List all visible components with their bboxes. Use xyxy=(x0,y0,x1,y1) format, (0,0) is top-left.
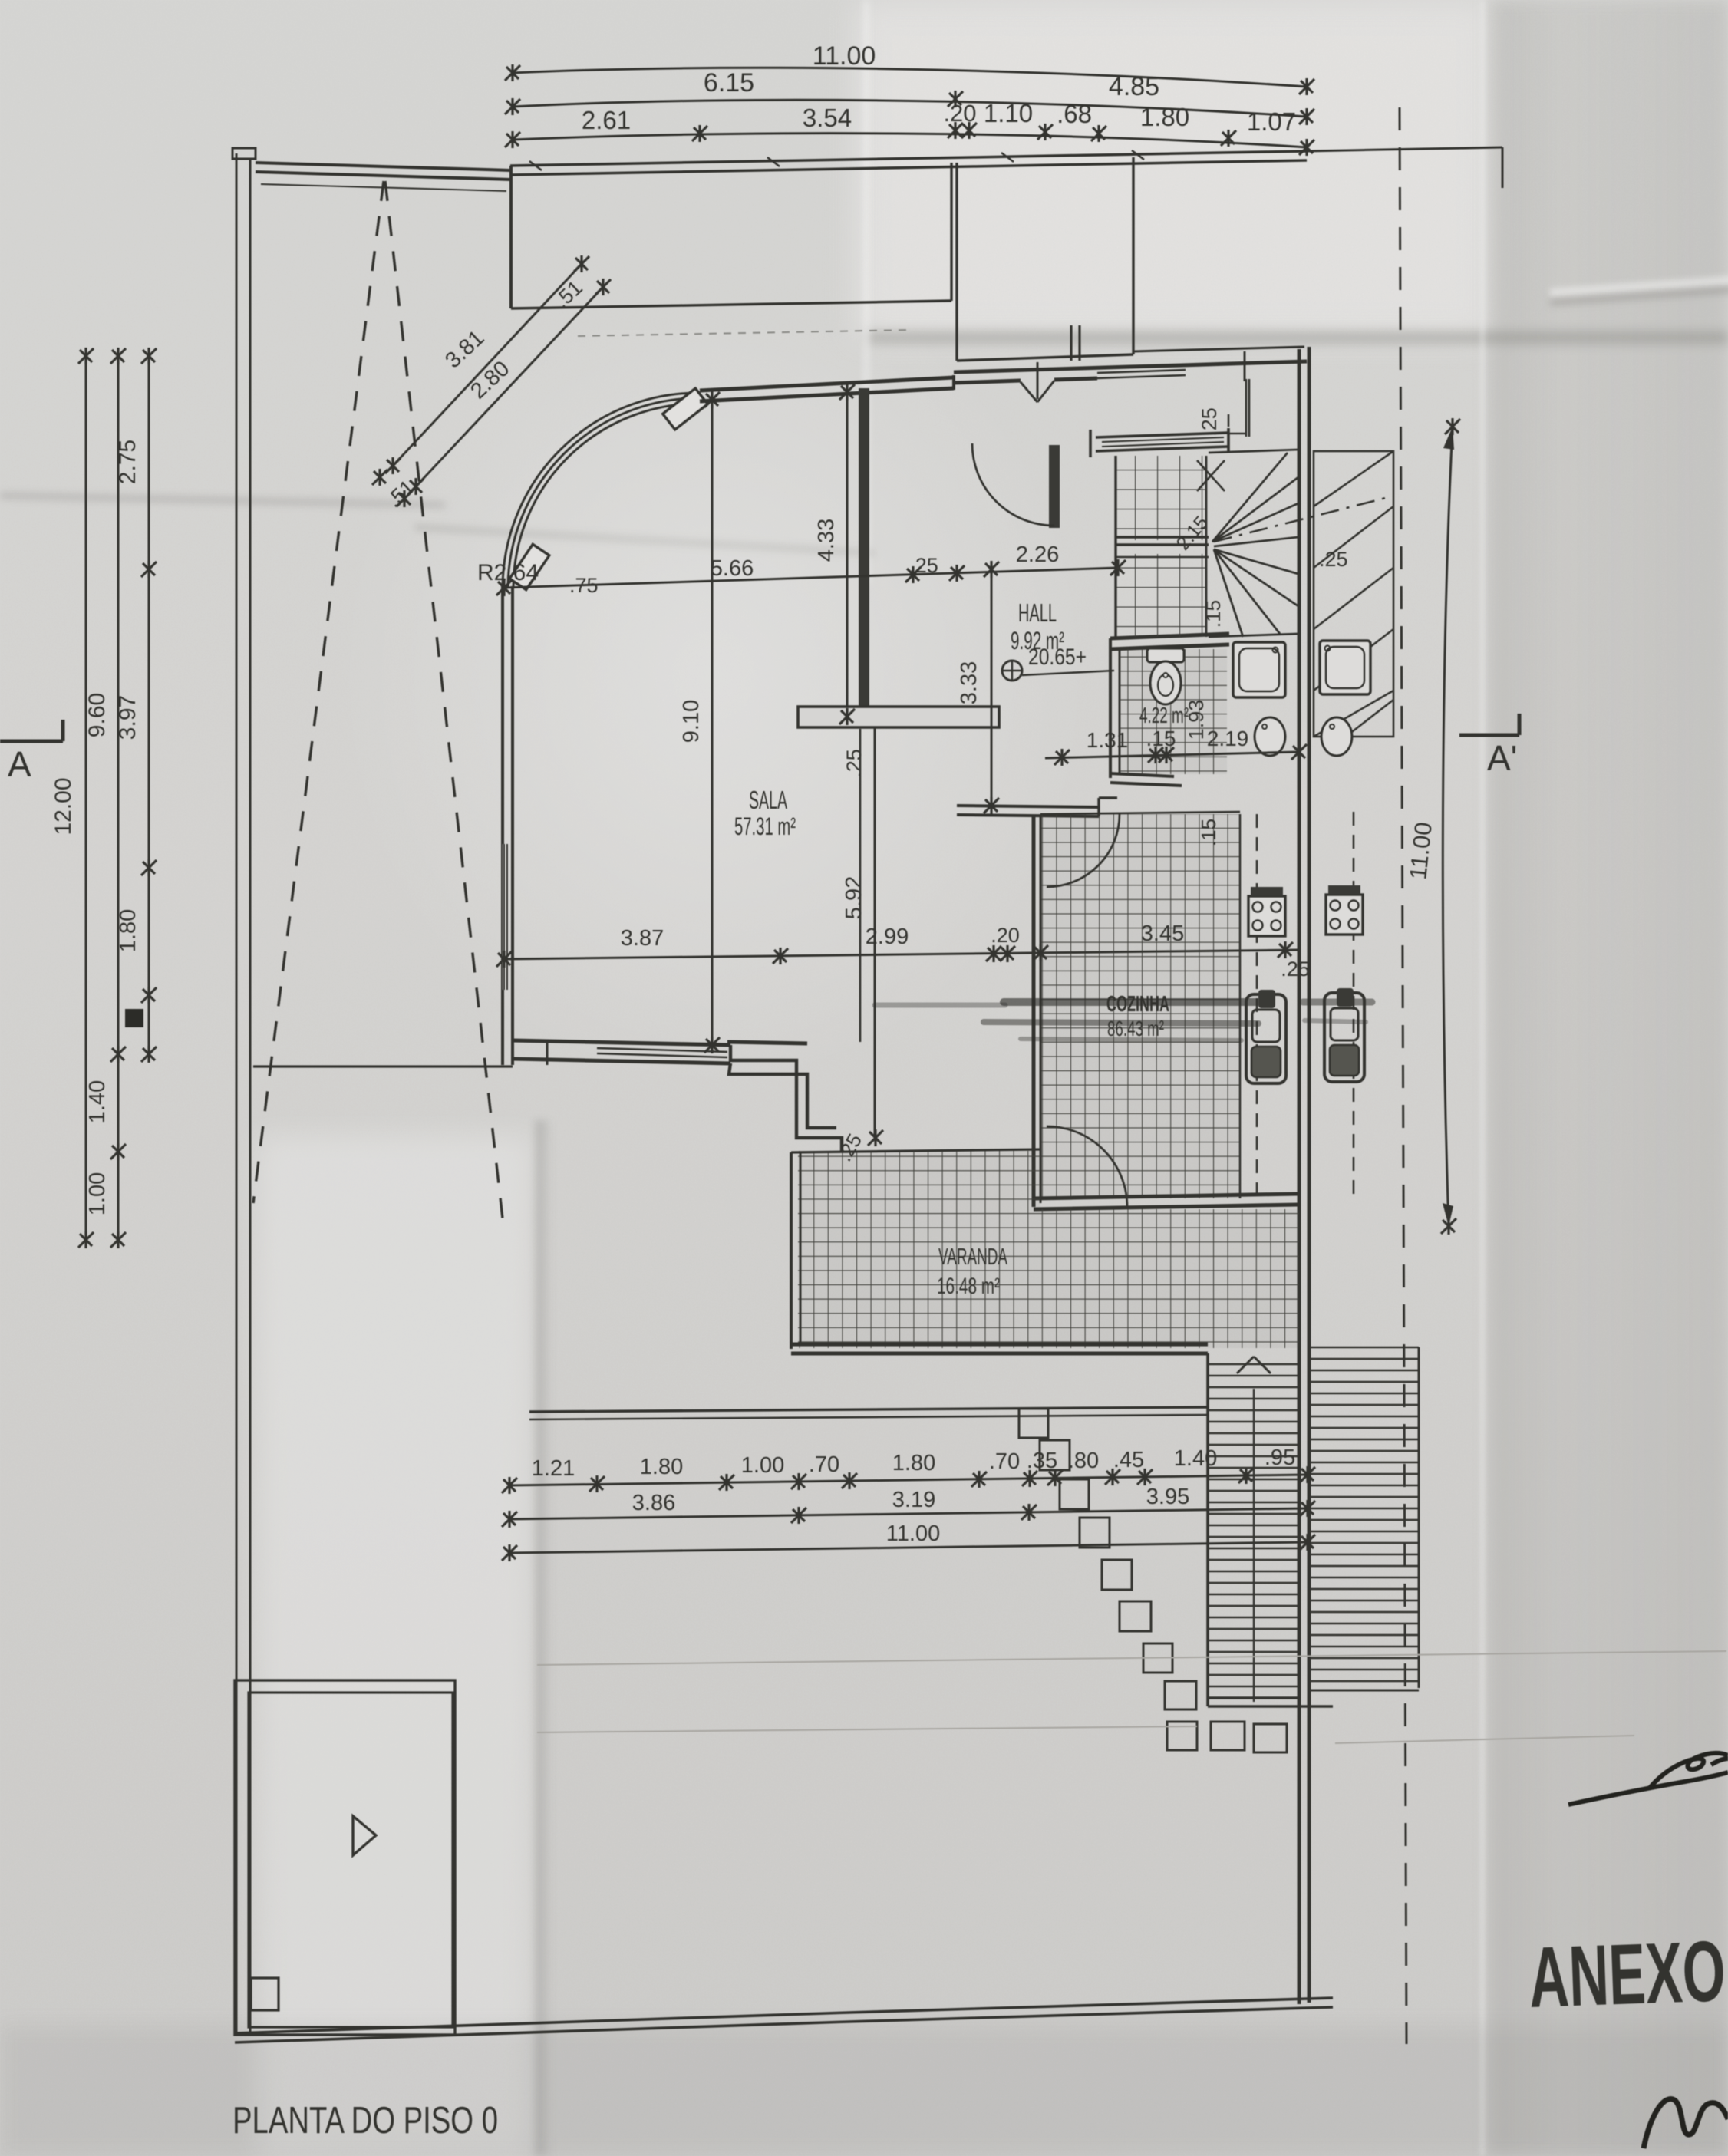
svg-text:R2.64: R2.64 xyxy=(477,560,539,585)
svg-text:1.10: 1.10 xyxy=(984,99,1033,127)
svg-text:.25: .25 xyxy=(843,749,866,778)
svg-text:2.75: 2.75 xyxy=(115,440,140,484)
svg-text:1.31: 1.31 xyxy=(1087,728,1129,752)
svg-text:HALL: HALL xyxy=(1018,598,1057,627)
svg-text:2.26: 2.26 xyxy=(1016,542,1059,567)
svg-text:3.45: 3.45 xyxy=(1141,921,1184,946)
svg-text:1.21: 1.21 xyxy=(532,1456,575,1481)
svg-text:.70: .70 xyxy=(989,1449,1020,1474)
svg-text:12.00: 12.00 xyxy=(51,777,76,835)
svg-text:2.99: 2.99 xyxy=(866,925,909,949)
svg-text:1.80: 1.80 xyxy=(116,909,140,952)
svg-text:3.54: 3.54 xyxy=(803,104,852,132)
svg-text:4.22 m²: 4.22 m² xyxy=(1139,704,1189,728)
svg-text:3.87: 3.87 xyxy=(621,926,664,951)
svg-text:.95: .95 xyxy=(1265,1446,1295,1470)
svg-text:2.19: 2.19 xyxy=(1207,727,1249,750)
svg-text:5.92: 5.92 xyxy=(842,876,866,919)
svg-text:3.97: 3.97 xyxy=(115,695,140,740)
svg-text:3.33: 3.33 xyxy=(957,661,981,704)
svg-text:1.40: 1.40 xyxy=(1174,1446,1217,1471)
svg-text:4.85: 4.85 xyxy=(1109,72,1159,101)
svg-text:1.07: 1.07 xyxy=(1247,107,1296,136)
svg-text:1.80: 1.80 xyxy=(892,1451,935,1475)
svg-text:A': A' xyxy=(1487,738,1517,778)
svg-text:1.00: 1.00 xyxy=(85,1172,110,1215)
svg-text:.25: .25 xyxy=(1198,407,1221,437)
svg-text:.35: .35 xyxy=(1027,1449,1057,1473)
svg-text:2.61: 2.61 xyxy=(582,106,631,134)
svg-text:9.60: 9.60 xyxy=(84,693,110,737)
svg-text:20.65+: 20.65+ xyxy=(1028,644,1087,670)
svg-text:4.33: 4.33 xyxy=(814,519,839,562)
svg-text:3.86: 3.86 xyxy=(632,1491,675,1515)
svg-text:ANEXO: ANEXO xyxy=(1527,1923,1726,2026)
svg-text:6.15: 6.15 xyxy=(704,68,754,97)
svg-text:.25: .25 xyxy=(909,554,938,577)
svg-text:5.66: 5.66 xyxy=(711,556,754,581)
svg-text:3.95: 3.95 xyxy=(1146,1485,1189,1509)
svg-text:.15: .15 xyxy=(1197,819,1220,846)
svg-text:.70: .70 xyxy=(809,1452,839,1477)
svg-text:16.48 m²: 16.48 m² xyxy=(937,1274,1000,1299)
svg-text:1.80: 1.80 xyxy=(1140,103,1189,131)
svg-text:11.00: 11.00 xyxy=(813,41,876,71)
svg-text:.45: .45 xyxy=(1113,1448,1144,1472)
svg-text:.80: .80 xyxy=(1068,1449,1099,1473)
svg-text:1.40: 1.40 xyxy=(85,1080,110,1123)
svg-text:.20: .20 xyxy=(943,100,976,127)
svg-text:.25: .25 xyxy=(1281,958,1310,981)
svg-text:.20: .20 xyxy=(991,924,1020,947)
svg-text:VARANDA: VARANDA xyxy=(938,1243,1007,1270)
svg-text:1.80: 1.80 xyxy=(640,1455,683,1479)
svg-text:PLANTA DO PISO 0: PLANTA DO PISO 0 xyxy=(232,2100,498,2141)
svg-text:.15: .15 xyxy=(1202,600,1225,628)
svg-text:1.00: 1.00 xyxy=(741,1453,784,1478)
svg-text:57.31 m²: 57.31 m² xyxy=(734,813,796,840)
svg-text:SALA: SALA xyxy=(749,786,787,814)
svg-text:.15: .15 xyxy=(1146,727,1176,750)
svg-text:A: A xyxy=(8,744,31,784)
svg-text:3.19: 3.19 xyxy=(892,1488,935,1512)
svg-text:1.93: 1.93 xyxy=(1185,700,1208,740)
svg-text:.68: .68 xyxy=(1057,100,1092,128)
svg-text:9.10: 9.10 xyxy=(679,700,704,743)
svg-text:11.00: 11.00 xyxy=(886,1521,940,1546)
